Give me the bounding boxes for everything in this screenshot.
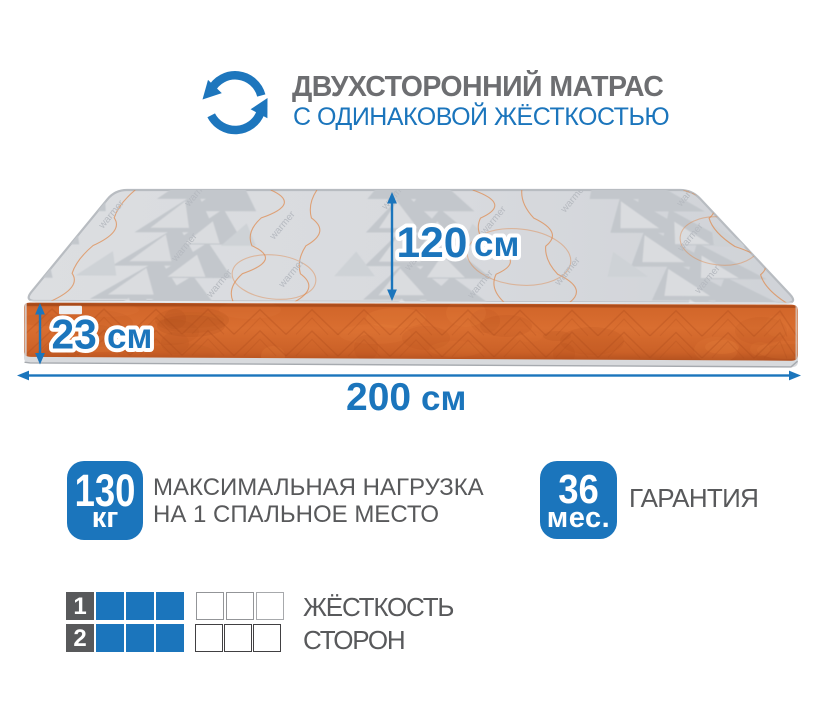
svg-text:см: см [474,225,519,264]
svg-text:см: см [107,317,152,356]
svg-text:23: 23 [52,311,97,358]
svg-text:120: 120 [397,220,468,267]
svg-text:200: 200 [346,376,411,419]
svg-text:см: см [421,379,466,418]
